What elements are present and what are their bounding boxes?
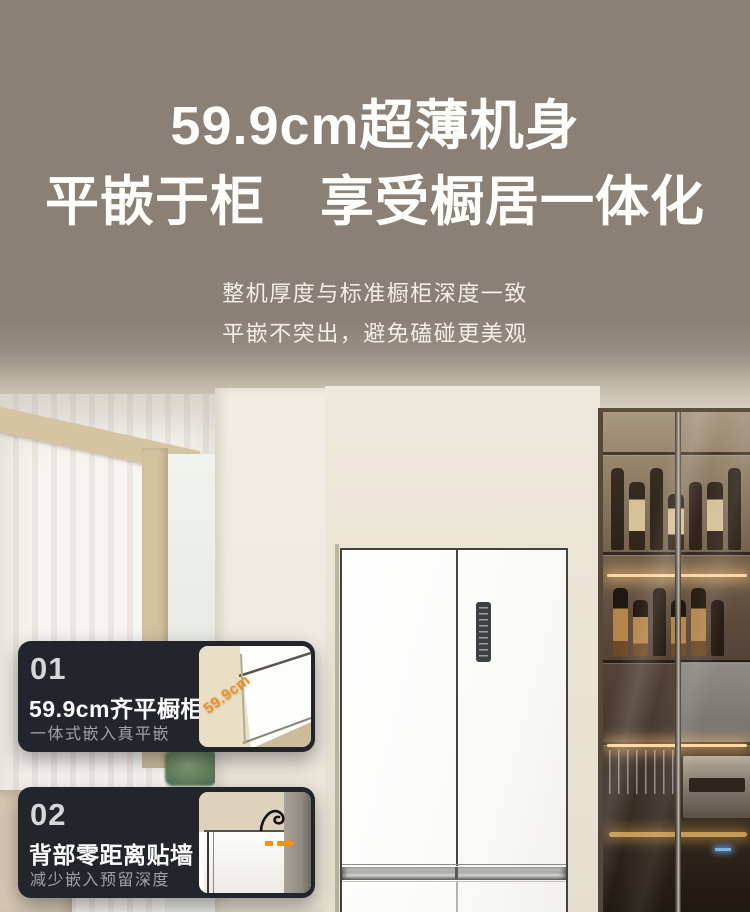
hero-title-line2: 平嵌于柜 享受橱居一体化: [0, 164, 750, 240]
bottle: [633, 600, 648, 656]
feature-title: 背部零距离贴墙: [29, 836, 194, 870]
door-bottom-line: [342, 864, 566, 865]
refrigerator: [340, 548, 568, 912]
feature-card-2: 02 背部零距离贴墙 减少嵌入预留深度: [18, 787, 315, 898]
product-promo-page: 59.9cm超薄机身 平嵌于柜 享受橱居一体化 整机厚度与标准橱柜深度一致 平嵌…: [0, 0, 750, 912]
handle-gap: [455, 867, 458, 880]
feature-subtitle: 减少嵌入预留深度: [30, 866, 170, 890]
fridge-control-panel: [476, 602, 491, 662]
feature-thumb-1: 59.9cm: [199, 646, 311, 747]
bottle: [611, 468, 624, 550]
glass-display-cabinet: [598, 408, 750, 912]
feature-card-1: 01 59.9cm齐平橱柜 一体式嵌入真平嵌 59.9cm: [18, 641, 315, 752]
door-split-line: [456, 550, 458, 866]
bottle: [711, 600, 724, 656]
bottle: [653, 588, 666, 656]
feature-number: 02: [30, 797, 66, 833]
hero-subtitle-line1: 整机厚度与标准橱柜深度一致: [0, 274, 750, 314]
alcove-shadow: [335, 544, 339, 912]
lower-door-split: [456, 882, 458, 912]
appliance-blue-display: [715, 848, 731, 851]
inner-kitchen-cabinet: [679, 662, 750, 742]
feature-number: 01: [30, 651, 66, 687]
hero-subtitle-line2: 平嵌不突出，避免磕碰更美观: [0, 314, 750, 354]
arrow-right-icon: [265, 838, 299, 848]
bottle: [650, 468, 663, 550]
inner-appliance: [683, 756, 750, 818]
feature-subtitle: 一体式嵌入真平嵌: [30, 720, 170, 744]
hero-title-line1: 59.9cm超薄机身: [0, 88, 750, 164]
hero-section: 59.9cm超薄机身 平嵌于柜 享受橱居一体化 整机厚度与标准橱柜深度一致 平嵌…: [0, 0, 750, 354]
fridge-handle-bar: [342, 867, 566, 880]
stemware-rack: [609, 750, 675, 794]
bottle: [689, 482, 702, 550]
green-plant: [165, 750, 217, 786]
bottle: [629, 482, 645, 550]
feature-thumb-2: [199, 792, 311, 893]
bottle: [613, 588, 628, 656]
glass-door-frame: [675, 412, 681, 912]
bottle: [691, 588, 706, 656]
feature-title: 59.9cm齐平橱柜: [29, 690, 204, 724]
bottle: [707, 482, 723, 550]
lower-door-line: [342, 881, 566, 882]
bottle: [728, 468, 741, 550]
